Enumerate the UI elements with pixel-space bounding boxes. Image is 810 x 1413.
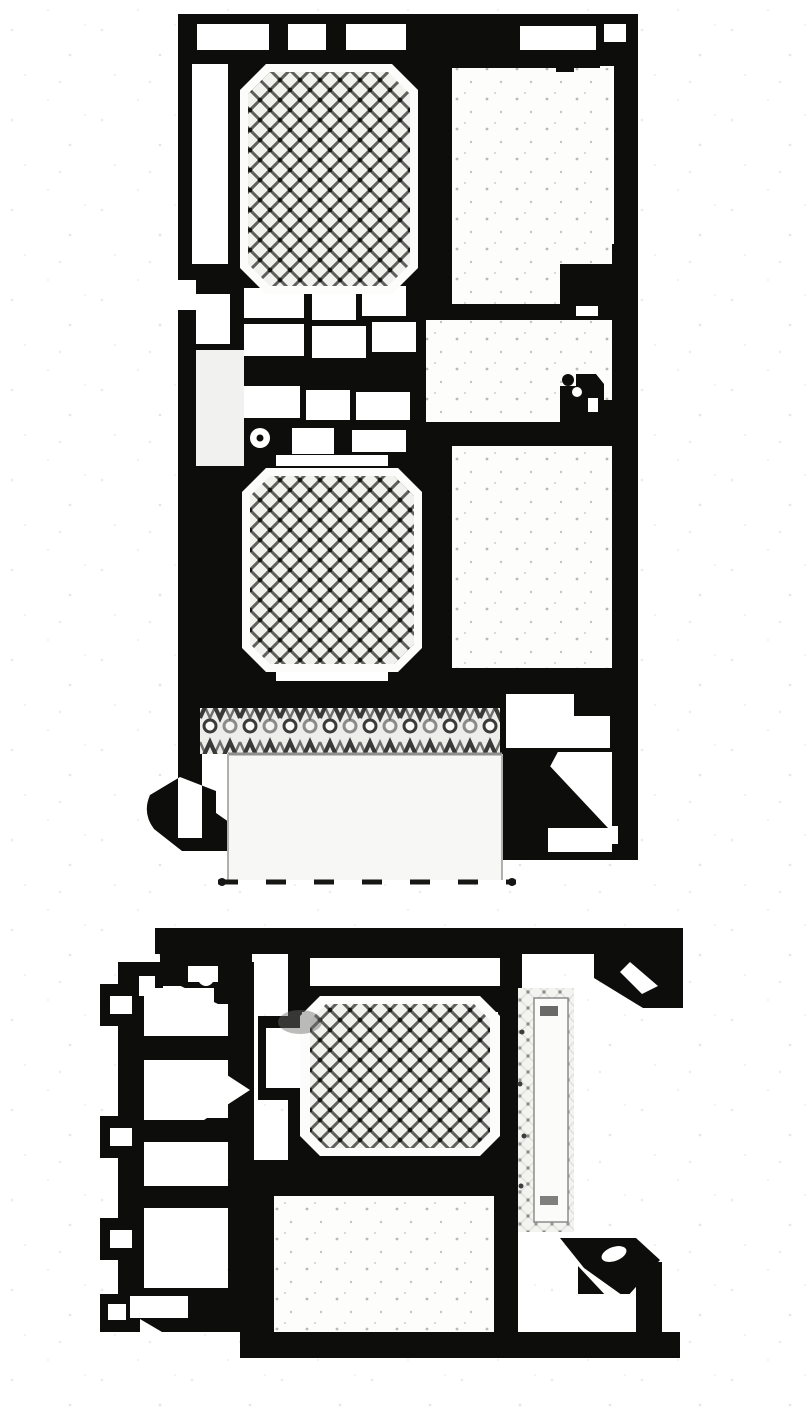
dash-end-left [218, 878, 226, 886]
foam-strip-insert [534, 998, 568, 1222]
pocket-step [574, 694, 610, 716]
thermal-insulation-block-center [310, 1004, 490, 1148]
lock-hole-round [572, 387, 582, 397]
thermal-insulation-block-lower [250, 476, 414, 664]
glass-panel [218, 754, 516, 886]
insulation-foam-strip [518, 988, 575, 1232]
foam-mark-bottom [540, 1196, 558, 1205]
foam-dot [520, 1030, 525, 1035]
thermal-insulation-block-upper [248, 72, 410, 286]
gasket-smudge [278, 1010, 322, 1034]
foam-dot [522, 1134, 527, 1139]
chamber-step [560, 264, 612, 306]
hollow-chambers-speckled [426, 68, 612, 668]
foam-dot [518, 1082, 523, 1087]
glass-pane-body [228, 754, 502, 880]
interlock-side-pocket [196, 350, 244, 466]
eyelet-center-dot [257, 435, 264, 442]
lock-roller-dot [562, 374, 574, 386]
profile-drawing-canvas [0, 0, 810, 1413]
hollow-chamber-speckled [274, 1196, 494, 1332]
cleat-hole [198, 970, 214, 986]
chamber-nub [556, 58, 574, 72]
brush-seal-band [200, 708, 500, 754]
lock-hole-slot [588, 398, 598, 412]
dash-end-right [508, 878, 516, 886]
foam-mark-top [540, 1006, 558, 1016]
foam-dot [519, 1184, 524, 1189]
